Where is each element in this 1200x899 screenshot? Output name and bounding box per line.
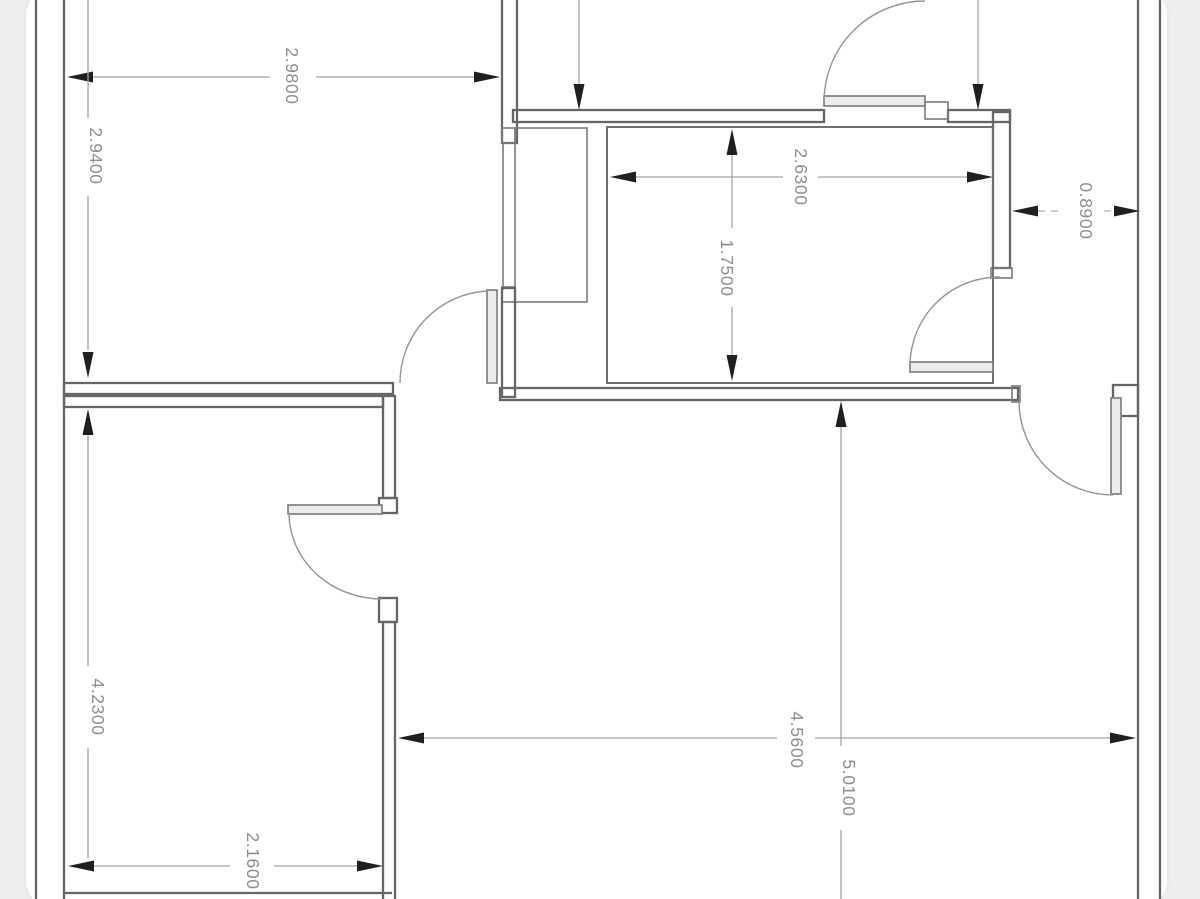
shaft-stub-top	[502, 128, 515, 143]
dimensions: 2.9800 2.9400 2.6300	[67, 0, 1140, 899]
arrowhead-up	[83, 409, 94, 435]
floor-plan-drawing: 2.9800 2.9400 2.6300	[0, 0, 1200, 899]
floor-plan-photo: 2.9800 2.9400 2.6300	[0, 0, 1200, 899]
dimension-top-left-room-width: 2.9800	[67, 47, 500, 104]
door-swing-arc	[824, 1, 925, 100]
door-leaf	[1111, 398, 1121, 494]
shaft-box	[515, 128, 587, 302]
outer-wall-right	[1138, 0, 1160, 899]
arrowhead-right	[967, 172, 993, 183]
doors	[288, 1, 1121, 599]
arrowhead-down	[83, 352, 94, 378]
dimension-cutoff-right	[973, 0, 984, 110]
arrowhead-left	[68, 861, 94, 872]
hall-wall-lower	[502, 288, 515, 397]
door-entry-top	[824, 1, 925, 106]
lower-left-room-right-wall-upper	[383, 396, 395, 498]
dimension-top-left-room-height: 2.9400	[83, 0, 107, 378]
arrowhead-right	[474, 72, 500, 83]
arrowhead-up	[727, 129, 738, 155]
arrowhead-down	[574, 84, 585, 110]
dimension-bathroom-height: 1.7500	[717, 129, 738, 381]
door-top-left-room	[400, 290, 497, 383]
door-swing-arc	[289, 513, 382, 599]
shaft-stub-bottom	[502, 287, 515, 302]
arrowhead-left	[1012, 206, 1038, 217]
door-leaf	[288, 505, 382, 514]
door-lower-left-room	[288, 505, 382, 599]
dimension-label: 1.7500	[717, 239, 737, 296]
corridor-south-wall	[500, 388, 1018, 400]
top-wall-left-segment	[513, 110, 824, 122]
top-left-room-bottom-wall	[64, 383, 393, 394]
arrowhead-left	[610, 172, 636, 183]
arrowhead-right	[1114, 206, 1140, 217]
dimension-label: 2.9800	[282, 47, 302, 104]
door-swing-arc	[910, 277, 1000, 364]
walls	[36, 0, 1160, 899]
dimension-bathroom-width: 2.6300	[610, 148, 993, 205]
dimension-cutoff-left	[574, 0, 585, 110]
door-leaf	[910, 362, 993, 372]
door-jamb-lower	[379, 598, 397, 622]
entry-door-hinge-block	[925, 102, 948, 119]
arrowhead-left	[67, 72, 93, 83]
arrowhead-down	[973, 84, 984, 110]
arrowhead-up	[836, 401, 847, 427]
arrowhead-right	[1110, 733, 1136, 744]
dimension-lower-left-room-height: 4.2300	[83, 409, 109, 858]
arrowhead-left	[398, 733, 424, 744]
dimension-label: 5.0100	[839, 759, 859, 816]
dimension-lower-right-room-height: 5.0100	[836, 401, 860, 899]
outer-wall-left	[36, 0, 64, 899]
door-leaf	[824, 96, 925, 106]
dimension-label: 0.8900	[1076, 182, 1096, 239]
door-swing-arc	[1019, 401, 1113, 495]
dimension-label: 4.5600	[787, 711, 807, 768]
lower-left-room-top-wall	[64, 396, 383, 407]
dimension-label: 4.2300	[88, 678, 108, 735]
dimension-lower-right-room-width: 4.5600	[398, 711, 1136, 768]
arrowhead-right	[357, 861, 383, 872]
dimension-lower-left-room-width: 2.1600	[68, 832, 383, 889]
door-bathroom	[910, 277, 1000, 372]
door-swing-arc	[400, 291, 487, 383]
lower-left-room-right-wall-lower	[383, 622, 395, 899]
dimension-label: 2.6300	[791, 148, 811, 205]
bathroom-right-wall	[993, 112, 1010, 268]
dimension-label: 2.1600	[243, 832, 263, 889]
dimension-right-corridor-width: 0.8900	[1012, 182, 1140, 239]
dimension-label: 2.9400	[86, 127, 106, 184]
door-leaf	[487, 290, 497, 383]
arrowhead-down	[727, 355, 738, 381]
door-lower-right-room	[1019, 398, 1121, 495]
